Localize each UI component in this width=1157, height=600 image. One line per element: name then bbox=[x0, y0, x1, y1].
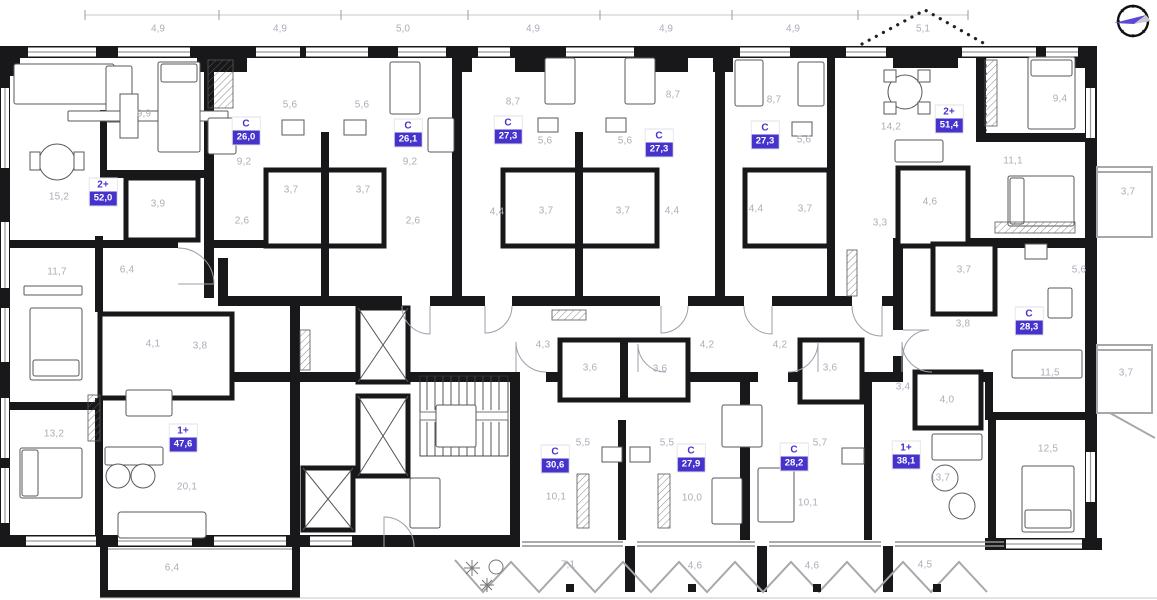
room-area-label: 5,6 bbox=[538, 136, 553, 147]
room-area-label: 8,7 bbox=[767, 95, 782, 106]
apartment-badge[interactable]: С27,3 bbox=[646, 130, 673, 157]
apartment-area-label: 30,6 bbox=[542, 459, 569, 473]
apartment-type-label: 1+ bbox=[170, 425, 197, 438]
room-area-label: 4,4 bbox=[665, 206, 680, 217]
facade-dimension-label: 4,9 bbox=[273, 24, 287, 35]
room-area-label: 2,6 bbox=[235, 216, 250, 227]
room-area-label: 3,4 bbox=[896, 382, 911, 393]
room-area-label: 5,6 bbox=[618, 136, 633, 147]
room-area-label: 5,6 bbox=[355, 100, 370, 111]
apartment-badge[interactable]: С27,9 bbox=[678, 445, 705, 472]
apartment-badge[interactable]: С27,3 bbox=[495, 117, 522, 144]
apartment-type-label: 2+ bbox=[90, 179, 117, 192]
room-area-label: 4,4 bbox=[749, 204, 764, 215]
apartment-badge[interactable]: 2+52,0 bbox=[90, 179, 117, 206]
apartment-area-label: 38,1 bbox=[893, 455, 920, 469]
room-area-label: 5,7 bbox=[813, 438, 828, 449]
apartment-area-label: 26,1 bbox=[395, 133, 422, 147]
room-area-label: 8,7 bbox=[666, 90, 681, 101]
room-area-label: 8,7 bbox=[506, 97, 521, 108]
apartment-area-label: 27,3 bbox=[646, 143, 673, 157]
apartment-badge[interactable]: С30,6 bbox=[542, 446, 569, 473]
facade-dimension-label: 5,1 bbox=[916, 24, 930, 35]
room-area-label: 4,6 bbox=[688, 561, 703, 572]
room-area-label: 3,7 bbox=[539, 206, 554, 217]
apartment-area-label: 28,3 bbox=[1016, 321, 1043, 335]
room-area-label: 2,6 bbox=[406, 216, 421, 227]
apartment-type-label: С bbox=[781, 444, 808, 457]
apartment-badge[interactable]: 1+38,1 bbox=[893, 442, 920, 469]
facade-dimension-label: 5,0 bbox=[396, 24, 410, 35]
room-area-label: 5,6 bbox=[797, 135, 812, 146]
room-area-label: 4,4 bbox=[490, 207, 505, 218]
apartment-type-label: 2+ bbox=[936, 106, 963, 119]
room-area-label: 3,6 bbox=[823, 363, 838, 374]
facade-dimension-label: 4,9 bbox=[151, 24, 165, 35]
room-area-label: 5,5 bbox=[660, 438, 675, 449]
facade-dimension-label: 4,9 bbox=[786, 24, 800, 35]
apartment-area-label: 26,0 bbox=[233, 131, 260, 145]
apartment-type-label: С bbox=[395, 120, 422, 133]
apartment-badge[interactable]: С28,3 bbox=[1016, 308, 1043, 335]
room-area-label: 20,1 bbox=[177, 482, 197, 493]
room-area-label: 4,1 bbox=[146, 339, 161, 350]
apartment-type-label: С bbox=[646, 130, 673, 143]
facade-dimension-label: 4,9 bbox=[526, 24, 540, 35]
apartment-type-label: С bbox=[495, 117, 522, 130]
apartment-type-label: С bbox=[233, 118, 260, 131]
apartment-area-label: 51,4 bbox=[936, 119, 963, 133]
room-area-label: 6,4 bbox=[165, 563, 180, 574]
room-area-label: 9,2 bbox=[237, 157, 252, 168]
room-area-label: 3,3 bbox=[873, 218, 888, 229]
room-area-label: 13,2 bbox=[44, 429, 64, 440]
apartment-badge[interactable]: С27,3 bbox=[752, 122, 779, 149]
facade-dimension-label: 4,9 bbox=[659, 24, 673, 35]
room-area-label: 4,6 bbox=[923, 197, 938, 208]
room-area-label: 3,7 bbox=[1119, 368, 1134, 379]
apartment-type-label: С bbox=[752, 122, 779, 135]
room-area-label: 4,6 bbox=[805, 561, 820, 572]
room-area-label: 6,4 bbox=[120, 265, 135, 276]
room-area-label: 10,1 bbox=[546, 492, 566, 503]
room-area-label: 3,7 bbox=[284, 185, 299, 196]
apartment-area-label: 27,3 bbox=[495, 130, 522, 144]
apartment-area-label: 47,6 bbox=[170, 438, 197, 452]
apartment-badge[interactable]: С26,1 bbox=[395, 120, 422, 147]
elevator-core bbox=[303, 308, 508, 530]
room-area-label: 12,5 bbox=[1038, 444, 1058, 455]
apartment-badge[interactable]: 2+51,4 bbox=[936, 106, 963, 133]
room-area-label: 4,5 bbox=[918, 560, 933, 571]
room-area-label: 11,1 bbox=[1003, 156, 1023, 167]
room-area-label: 3,6 bbox=[653, 364, 668, 375]
room-area-label: 3,9 bbox=[151, 199, 166, 210]
apartment-type-label: 1+ bbox=[893, 442, 920, 455]
room-area-label: 5,6 bbox=[283, 100, 298, 111]
room-area-label: 3,7 bbox=[356, 185, 371, 196]
apartment-badge[interactable]: С28,2 bbox=[781, 444, 808, 471]
compass-icon bbox=[1114, 5, 1151, 38]
room-area-label: 5,6 bbox=[1072, 265, 1087, 276]
room-area-label: 15,2 bbox=[49, 192, 69, 203]
apartment-type-label: С bbox=[678, 445, 705, 458]
room-area-label: 4,2 bbox=[700, 340, 715, 351]
room-area-label: 3,8 bbox=[193, 341, 208, 352]
apartment-badge[interactable]: С26,0 bbox=[233, 118, 260, 145]
apartment-area-label: 52,0 bbox=[90, 192, 117, 206]
room-area-label: 7,1 bbox=[561, 560, 576, 571]
room-area-label: 9,2 bbox=[403, 157, 418, 168]
apartment-area-label: 27,9 bbox=[678, 458, 705, 472]
room-area-label: 3,7 bbox=[957, 265, 972, 276]
room-area-label: 9,4 bbox=[1053, 94, 1068, 105]
apartment-area-label: 27,3 bbox=[752, 135, 779, 149]
apartment-badge[interactable]: 1+47,6 bbox=[170, 425, 197, 452]
room-area-label: 10,1 bbox=[798, 498, 818, 509]
room-area-label: 3,6 bbox=[583, 363, 598, 374]
room-area-label: 3,7 bbox=[1121, 187, 1136, 198]
room-area-label: 3,7 bbox=[616, 206, 631, 217]
room-area-label: 5,5 bbox=[576, 438, 591, 449]
room-area-label: 4,2 bbox=[773, 340, 788, 351]
room-area-label: 14,2 bbox=[881, 122, 901, 133]
room-area-label: 11,5 bbox=[1040, 368, 1060, 379]
apartment-area-label: 28,2 bbox=[781, 457, 808, 471]
room-area-label: 3,8 bbox=[956, 319, 971, 330]
apartment-type-label: С bbox=[542, 446, 569, 459]
room-area-label: 10,0 bbox=[682, 493, 702, 504]
room-area-label: 11,7 bbox=[47, 267, 67, 278]
side-balcony bbox=[1097, 167, 1155, 438]
room-area-label: 9,9 bbox=[137, 109, 152, 120]
apartment-type-label: С bbox=[1016, 308, 1043, 321]
floorplan-drawing bbox=[0, 0, 1157, 600]
dimension-line bbox=[85, 10, 968, 20]
room-area-label: 3,7 bbox=[798, 204, 813, 215]
room-area-label: 4,3 bbox=[536, 340, 551, 351]
room-area-label: 13,7 bbox=[930, 473, 950, 484]
room-area-label: 4,0 bbox=[940, 395, 955, 406]
floorplan-canvas: 4,94,95,04,94,94,95,19,95,65,69,215,28,7… bbox=[0, 0, 1157, 600]
